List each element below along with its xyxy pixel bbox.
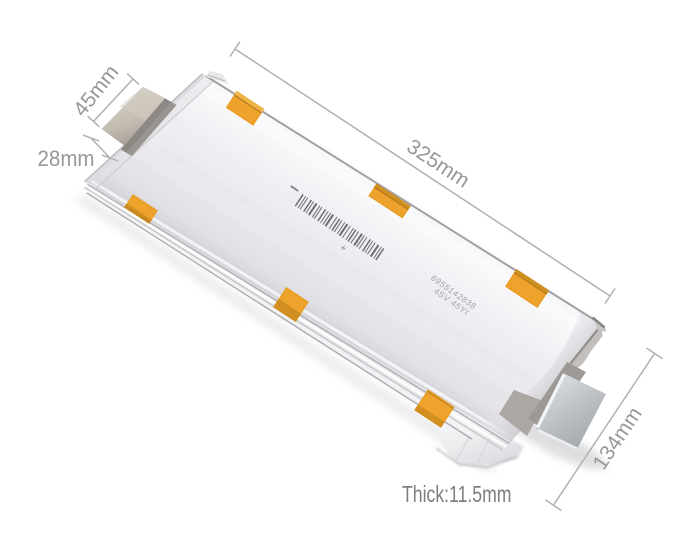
svg-text:Thick:11.5mm: Thick:11.5mm	[402, 481, 512, 507]
svg-text:28mm: 28mm	[38, 146, 95, 171]
